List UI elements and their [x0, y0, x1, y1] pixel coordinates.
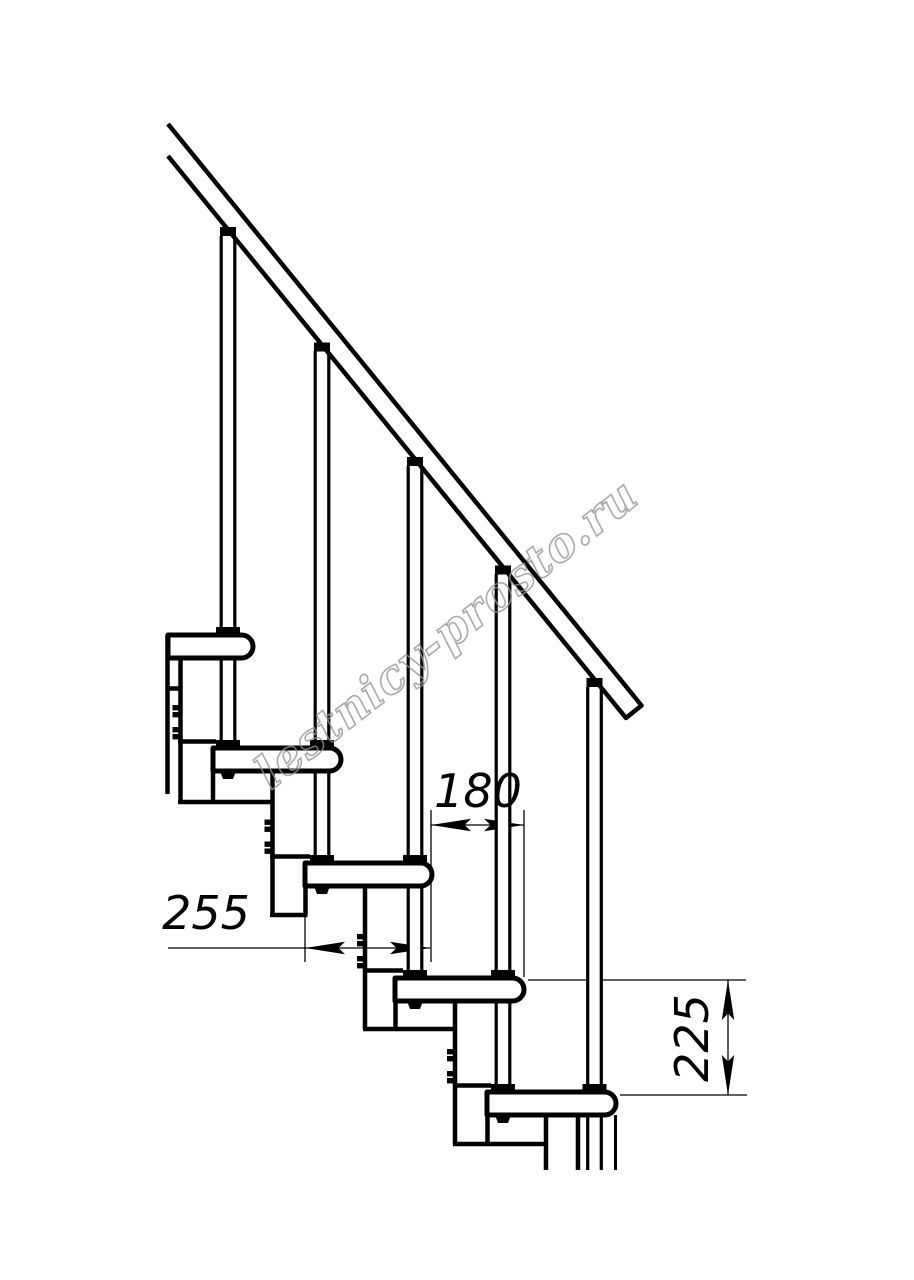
pipe-foot-icon — [491, 1084, 515, 1092]
baluster-pipe-2 — [315, 351, 329, 855]
bolt-icon — [173, 734, 181, 739]
pipe-core — [588, 687, 602, 1084]
dimension-label-255: 255 — [162, 886, 250, 940]
tread-3 — [305, 863, 432, 886]
bolt-icon — [357, 934, 365, 939]
bolt-icon — [173, 712, 181, 717]
baluster-pipe-1 — [221, 236, 235, 740]
rail-connector-icon — [407, 457, 423, 466]
pipe-core — [588, 1115, 602, 1170]
bolt-icon — [357, 941, 365, 946]
pipe-core — [496, 1001, 510, 1084]
pipe-collar-icon — [491, 970, 515, 978]
pipe-foot-icon — [216, 740, 240, 748]
tread-5 — [487, 1092, 616, 1115]
pipe-collar-icon — [583, 1084, 607, 1092]
pipe-collar-icon — [216, 627, 240, 635]
dimension-label-225: 225 — [665, 994, 719, 1082]
bolt-icon — [265, 842, 273, 847]
bolt-icon — [447, 1049, 455, 1054]
baluster-pipe-4 — [496, 574, 510, 1084]
bolt-icon — [447, 1056, 455, 1061]
pipe-core — [221, 658, 235, 740]
pipe-core — [408, 886, 422, 970]
rail-connector-icon — [314, 343, 330, 352]
dimension-label-180: 180 — [434, 764, 522, 818]
pipe-collar-icon — [403, 855, 427, 863]
pipe-core — [315, 771, 329, 855]
bolt-icon — [447, 1071, 455, 1076]
bolt-icon — [173, 705, 181, 710]
bolt-icon — [265, 827, 273, 832]
pipe-foot-icon — [403, 970, 427, 978]
pipe-core — [221, 236, 235, 627]
bolt-icon — [265, 820, 273, 825]
tread-4 — [395, 978, 524, 1001]
bolt-icon — [265, 849, 273, 854]
staircase-drawing-page: 255 180 225 lestnicy-prosto.ru — [0, 0, 914, 1280]
pipe-foot-icon — [310, 855, 334, 863]
rail-connector-icon — [220, 227, 236, 236]
bolt-icon — [447, 1078, 455, 1083]
tread-1 — [168, 635, 253, 658]
bolt-icon — [173, 727, 181, 732]
pipe-core — [315, 351, 329, 740]
staircase-drawing: 255 180 225 lestnicy-prosto.ru — [0, 0, 914, 1280]
bolt-icon — [357, 956, 365, 961]
rail-connector-icon — [587, 678, 603, 687]
baluster-pipe-3 — [408, 466, 422, 970]
bolt-icon — [357, 963, 365, 968]
